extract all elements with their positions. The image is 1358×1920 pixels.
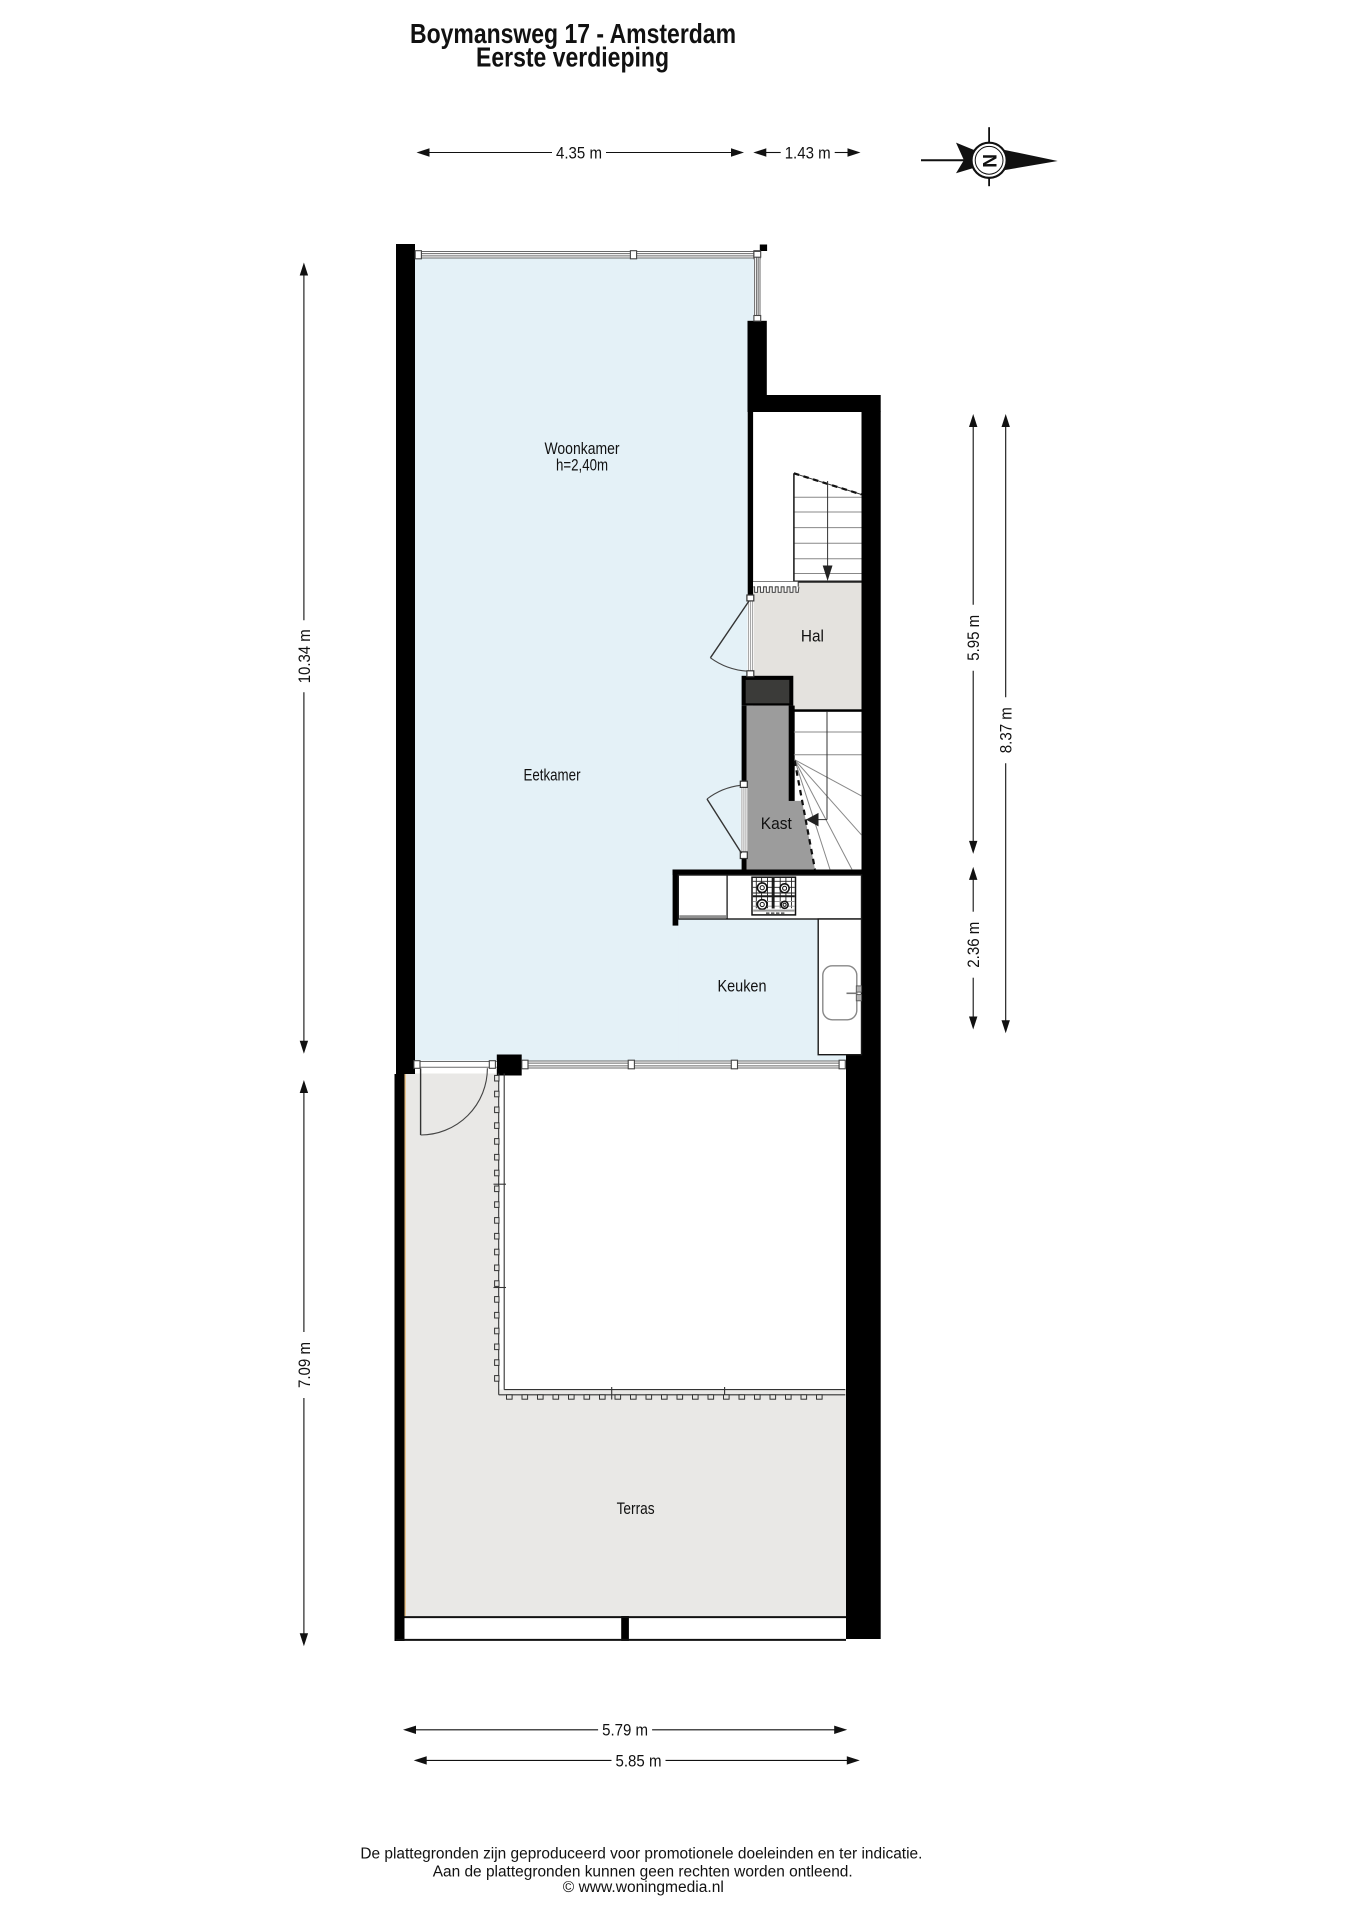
svg-text:8.37 m: 8.37 m: [997, 707, 1016, 753]
svg-text:10.34 m: 10.34 m: [295, 629, 314, 683]
svg-text:Woonkamer: Woonkamer: [545, 440, 620, 458]
svg-text:2.36 m: 2.36 m: [964, 922, 983, 968]
svg-text:1.43 m: 1.43 m: [785, 143, 831, 162]
svg-text:7.09 m: 7.09 m: [295, 1342, 314, 1388]
svg-text:4.35 m: 4.35 m: [556, 143, 602, 162]
svg-text:Kast: Kast: [761, 815, 792, 833]
svg-text:Hal: Hal: [801, 627, 824, 645]
svg-text:h=2,40m: h=2,40m: [556, 457, 608, 475]
svg-text:5.85 m: 5.85 m: [616, 1751, 662, 1770]
svg-text:Keuken: Keuken: [718, 978, 767, 996]
svg-text:Eerste verdieping: Eerste verdieping: [476, 42, 669, 73]
svg-text:© www.woningmedia.nl: © www.woningmedia.nl: [563, 1879, 724, 1896]
svg-text:5.79 m: 5.79 m: [602, 1721, 648, 1740]
svg-text:Eetkamer: Eetkamer: [524, 766, 581, 784]
svg-text:De plattegronden zijn geproduc: De plattegronden zijn geproduceerd voor …: [360, 1846, 922, 1863]
svg-text:5.95 m: 5.95 m: [964, 615, 983, 661]
svg-text:Terras: Terras: [617, 1500, 655, 1518]
svg-text:Aan de plattegronden kunnen ge: Aan de plattegronden kunnen geen rechten…: [433, 1864, 853, 1881]
svg-text:N: N: [978, 154, 999, 168]
